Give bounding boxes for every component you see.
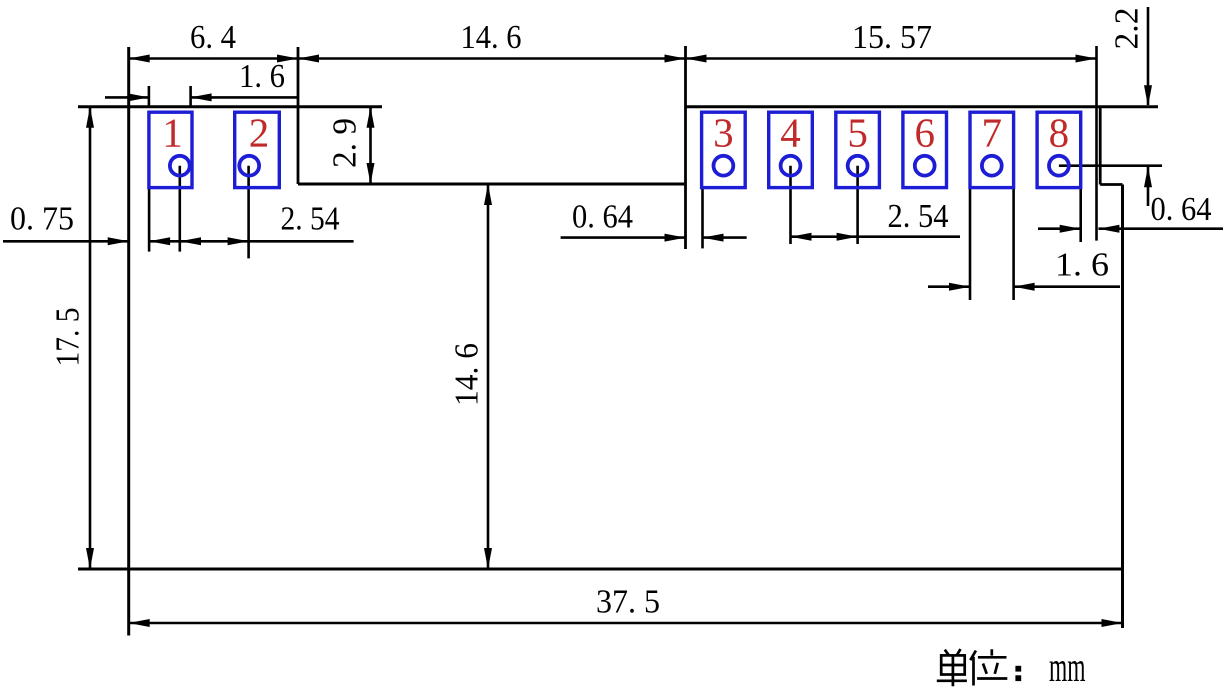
svg-text:14. 6: 14. 6 <box>461 19 522 56</box>
svg-text:1. 6: 1. 6 <box>239 58 285 95</box>
svg-text:2: 2 <box>249 110 270 156</box>
svg-text:2.2: 2.2 <box>1109 8 1146 50</box>
svg-text:2. 54: 2. 54 <box>888 198 949 235</box>
svg-text:1. 6: 1. 6 <box>1055 247 1109 284</box>
svg-text:8: 8 <box>1049 110 1070 156</box>
svg-text:1: 1 <box>162 110 183 156</box>
svg-text:6. 4: 6. 4 <box>190 19 236 56</box>
svg-text:0. 75: 0. 75 <box>10 201 74 238</box>
svg-text:17. 5: 17. 5 <box>50 308 87 367</box>
svg-text:2. 54: 2. 54 <box>281 201 340 238</box>
svg-text:37. 5: 37. 5 <box>596 584 660 621</box>
svg-text:7: 7 <box>982 110 1003 156</box>
svg-text:mm: mm <box>1049 644 1086 691</box>
svg-text:2. 9: 2. 9 <box>327 118 364 168</box>
svg-text:5: 5 <box>847 110 868 156</box>
svg-text:0. 64: 0. 64 <box>572 199 633 236</box>
svg-text:4: 4 <box>780 110 801 156</box>
svg-text:6: 6 <box>914 110 935 156</box>
svg-text:14. 6: 14. 6 <box>449 343 486 406</box>
svg-text:3: 3 <box>713 110 734 156</box>
svg-text:15. 57: 15. 57 <box>852 19 932 56</box>
svg-text:0. 64: 0. 64 <box>1151 191 1212 228</box>
